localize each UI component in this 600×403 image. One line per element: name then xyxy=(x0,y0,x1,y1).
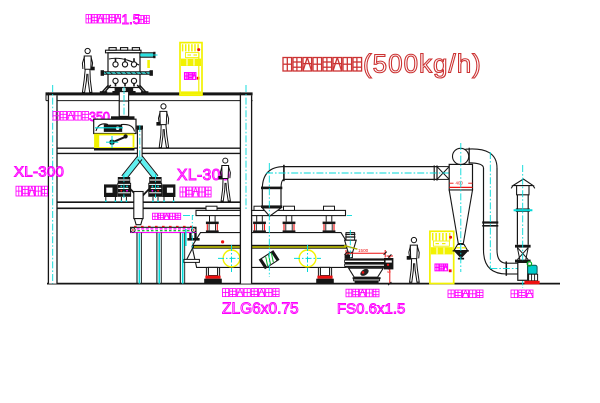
svg-text:FS0.6x1.5: FS0.6x1.5 xyxy=(337,301,405,318)
svg-text:ZLG6x0.75: ZLG6x0.75 xyxy=(222,301,299,318)
svg-text:400: 400 xyxy=(456,181,464,186)
svg-text:(500kg/h): (500kg/h) xyxy=(363,49,482,79)
svg-text:XL-300: XL-300 xyxy=(14,164,64,181)
svg-text:1.5: 1.5 xyxy=(122,12,141,27)
svg-text:1500: 1500 xyxy=(358,248,369,253)
